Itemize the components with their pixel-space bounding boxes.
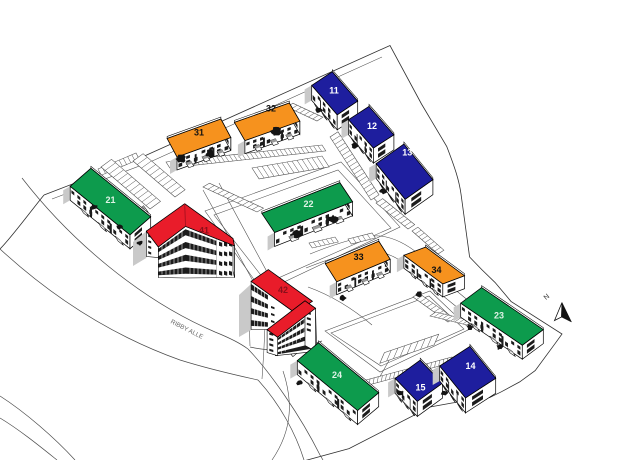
svg-text:33: 33	[354, 252, 364, 262]
svg-text:32: 32	[266, 104, 276, 114]
svg-text:41: 41	[199, 226, 209, 236]
svg-text:15: 15	[415, 383, 425, 393]
svg-text:12: 12	[367, 121, 377, 131]
svg-text:13: 13	[402, 148, 412, 158]
svg-text:34: 34	[431, 265, 441, 275]
svg-text:31: 31	[194, 128, 204, 138]
svg-text:14: 14	[465, 361, 475, 371]
svg-text:11: 11	[329, 86, 339, 96]
svg-text:21: 21	[105, 195, 115, 205]
svg-text:22: 22	[303, 199, 313, 209]
svg-text:23: 23	[494, 311, 504, 321]
svg-text:24: 24	[332, 370, 342, 380]
svg-text:42: 42	[278, 285, 288, 295]
